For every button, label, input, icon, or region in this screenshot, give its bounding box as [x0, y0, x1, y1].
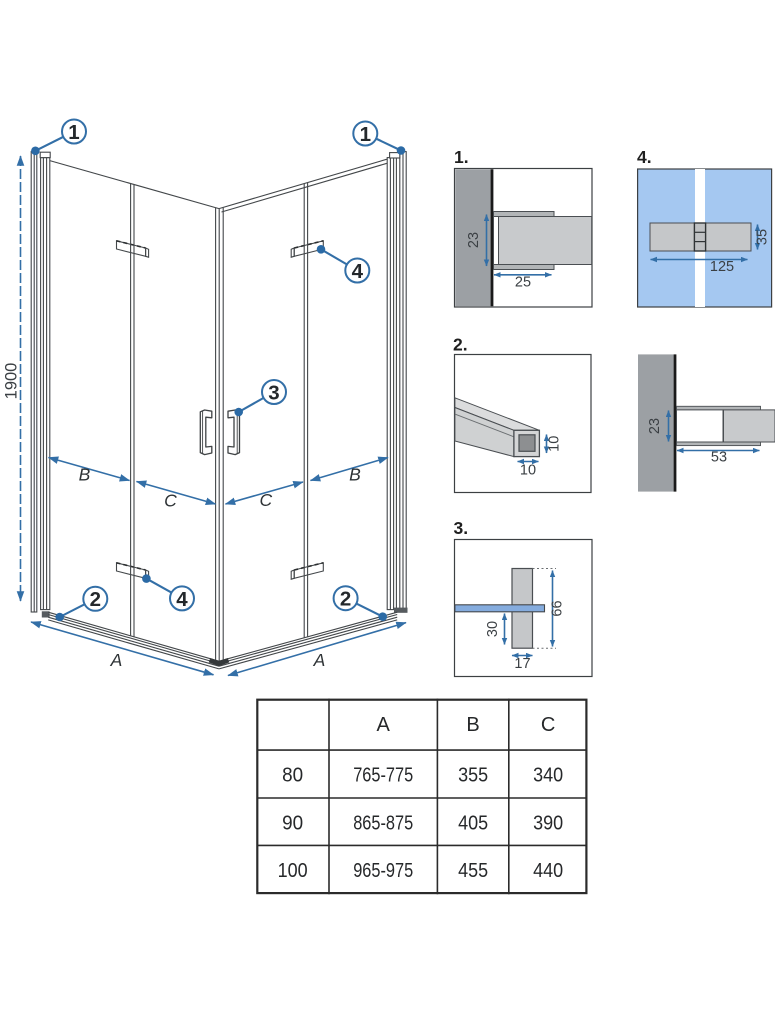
- svg-text:2: 2: [90, 588, 101, 611]
- svg-text:125: 125: [710, 259, 734, 275]
- svg-text:340: 340: [533, 765, 563, 787]
- svg-text:4: 4: [176, 588, 188, 611]
- svg-text:390: 390: [533, 812, 563, 834]
- svg-text:80: 80: [282, 765, 303, 787]
- svg-text:90: 90: [282, 812, 303, 834]
- svg-text:355: 355: [458, 765, 488, 787]
- svg-text:3: 3: [268, 381, 279, 404]
- svg-text:1: 1: [68, 121, 79, 144]
- svg-text:1.: 1.: [454, 147, 469, 167]
- svg-text:53: 53: [711, 450, 727, 466]
- svg-text:1: 1: [360, 123, 371, 146]
- svg-text:4.: 4.: [637, 147, 652, 167]
- svg-text:455: 455: [458, 860, 488, 882]
- svg-text:23: 23: [647, 418, 663, 434]
- svg-text:765-775: 765-775: [353, 765, 413, 787]
- svg-text:B: B: [79, 465, 91, 485]
- svg-text:2.: 2.: [453, 335, 468, 355]
- svg-text:2: 2: [340, 588, 351, 611]
- svg-text:30: 30: [485, 621, 501, 637]
- svg-text:B: B: [466, 714, 479, 736]
- svg-text:965-975: 965-975: [353, 860, 413, 882]
- svg-text:405: 405: [458, 812, 488, 834]
- svg-text:A: A: [377, 714, 391, 736]
- svg-text:440: 440: [533, 860, 563, 882]
- svg-text:66: 66: [550, 600, 566, 616]
- svg-text:3.: 3.: [454, 518, 469, 538]
- svg-text:C: C: [259, 490, 272, 510]
- svg-text:B: B: [349, 465, 361, 485]
- svg-text:25: 25: [515, 275, 531, 291]
- svg-text:10: 10: [547, 436, 563, 452]
- svg-text:C: C: [541, 714, 555, 736]
- svg-text:4: 4: [352, 260, 364, 283]
- svg-text:10: 10: [520, 463, 536, 479]
- svg-text:17: 17: [514, 656, 530, 672]
- svg-text:C: C: [164, 491, 177, 511]
- svg-text:865-875: 865-875: [353, 812, 413, 834]
- svg-text:35: 35: [755, 229, 771, 245]
- svg-text:A: A: [313, 650, 326, 670]
- svg-text:A: A: [110, 650, 123, 670]
- svg-text:1900: 1900: [3, 363, 21, 400]
- svg-text:100: 100: [278, 860, 308, 882]
- svg-text:23: 23: [466, 232, 482, 248]
